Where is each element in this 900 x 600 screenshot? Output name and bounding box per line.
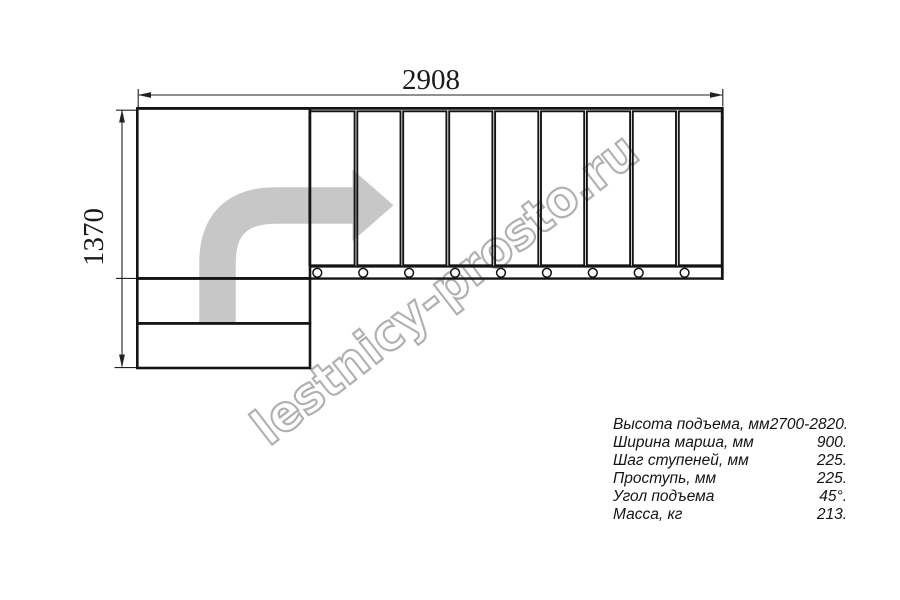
- tread-3: [403, 111, 446, 265]
- baluster-circle: [359, 268, 368, 277]
- baluster-circle: [588, 268, 597, 277]
- spec-value: 45°.: [819, 488, 847, 506]
- spec-value: 213.: [817, 506, 847, 524]
- baluster-circle: [451, 268, 460, 277]
- left-dimension-label: 1370: [78, 208, 110, 266]
- watermark-text: lestnicy-prosto.ru: [241, 121, 650, 456]
- baluster-circle: [313, 268, 322, 277]
- staircase-plan-page: lestnicy-prosto.ru: [0, 0, 900, 600]
- spec-value: 2700-2820.: [770, 416, 848, 434]
- spec-table: Высота подъема, мм 2700-2820. Ширина мар…: [613, 416, 847, 524]
- baluster-circle: [634, 268, 643, 277]
- dim-arrowhead-icon: [710, 92, 723, 98]
- baluster-circle: [543, 268, 552, 277]
- baluster-circles: [313, 268, 689, 277]
- baluster-circle: [680, 268, 689, 277]
- top-dimension-label: 2908: [402, 64, 460, 96]
- spec-value: 225.: [817, 452, 847, 470]
- spec-label: Шаг ступеней, мм: [613, 452, 749, 470]
- spec-row: Проступь, мм 225.: [613, 470, 847, 488]
- spec-row: Шаг ступеней, мм 225.: [613, 452, 847, 470]
- spec-row: Масса, кг 213.: [613, 506, 847, 524]
- direction-arrow-head-icon: [353, 170, 394, 242]
- spec-row: Высота подъема, мм 2700-2820.: [613, 416, 847, 434]
- spec-value: 900.: [817, 434, 847, 452]
- spec-label: Угол подъема: [613, 488, 714, 506]
- baluster-circle: [405, 268, 414, 277]
- spec-label: Масса, кг: [613, 506, 682, 524]
- baluster-circle: [497, 268, 506, 277]
- lower-step-2: [137, 323, 310, 368]
- dim-arrowhead-icon: [138, 92, 151, 98]
- spec-label: Ширина марша, мм: [613, 434, 754, 452]
- tread-8: [633, 111, 676, 265]
- direction-arrow: [218, 170, 394, 325]
- dim-arrowhead-icon: [119, 110, 125, 123]
- spec-label: Проступь, мм: [613, 470, 716, 488]
- spec-label: Высота подъема, мм: [613, 416, 770, 434]
- dim-arrowhead-icon: [119, 355, 125, 368]
- tread-9: [679, 111, 722, 265]
- spec-value: 225.: [817, 470, 847, 488]
- spec-row: Ширина марша, мм 900.: [613, 434, 847, 452]
- spec-row: Угол подъема 45°.: [613, 488, 847, 506]
